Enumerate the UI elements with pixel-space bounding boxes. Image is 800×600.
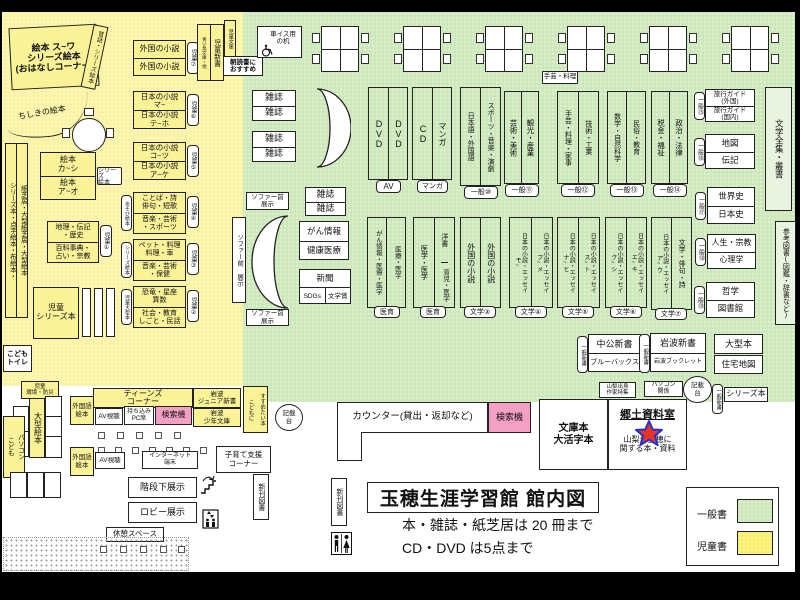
bench xyxy=(10,472,27,498)
shelf-literature-collections: 文学全集・叢書 xyxy=(765,87,792,211)
seat xyxy=(120,546,127,553)
tag-general-15: 一般⑮ xyxy=(694,92,705,120)
shelf-literature-7: 日本の小説・エッセイ ア~ウ文学・俳句・詩 xyxy=(651,217,692,310)
kids-computer: こどもパソコン xyxy=(3,416,25,478)
service-counter-wing xyxy=(337,432,362,461)
current-location-star xyxy=(635,420,663,448)
reference-books: 参考図書(図鑑・辞書など) xyxy=(775,221,796,325)
tag-children-3: 児童③ xyxy=(187,243,199,275)
shelf-travel-guides: 旅行ガイド (外国)旅行ガイド (国内) xyxy=(705,89,755,122)
legend-general-swatch xyxy=(737,499,773,523)
yamanashi-authors-feature: 山梨出身 作家特集 xyxy=(599,382,636,398)
cancer-info-health-rack: がん情報健康医療 xyxy=(299,221,349,260)
tag-general-11: 一般⑪ xyxy=(505,184,539,197)
tag-children-1: 児童① xyxy=(100,225,112,257)
bench xyxy=(27,472,44,498)
shelf-chuko-shinsho: 中公新書 xyxy=(588,334,641,354)
tag-general-19: 一般⑲ xyxy=(694,286,705,314)
tag-children-4: 児童④ xyxy=(187,196,199,228)
handicraft-cooking-label: 手芸・料理 xyxy=(542,71,578,84)
shelf-rack xyxy=(45,396,62,417)
loan-limit-av: CD・DVD は5点まで xyxy=(402,538,622,558)
elevator-icon xyxy=(202,507,219,529)
bunko-large-print-room: 文庫本 大活字本 xyxy=(539,399,608,470)
legend-general-label: 一般書 xyxy=(697,506,727,521)
sofa-front-display-left: ソファー前 展示 xyxy=(232,217,246,303)
shelf-children-5: 日本の小説 コ~ツ日本の小説 ア~ケ xyxy=(133,142,186,180)
wheelchair-desk: 車イス用 の机 xyxy=(257,26,302,58)
chair-row xyxy=(98,432,181,439)
tag-series-picture-books: シリーズ絵本 xyxy=(121,242,132,278)
tag-series-picture-books-side: シリーズ 絵本 xyxy=(97,167,122,185)
morning-reading-recommend: 朝読書に おすすめ xyxy=(223,56,263,76)
tag-children-2: 児童② xyxy=(187,290,199,322)
tag-literature-7: 文学⑦ xyxy=(655,308,687,320)
children-shinsho-shelf: 青い鳥文庫・他児童新書 xyxy=(197,24,224,81)
children-series-books: 児童 シリーズ本 xyxy=(33,287,79,339)
shelf-general-12: 手芸・料理・家事技術・工業 xyxy=(557,91,599,184)
shelf-medical-a: がん情報・医療・医学医療・医学 xyxy=(367,217,406,308)
shelf-children-6: 日本の小説 マ~日本の小説 テ~ホ xyxy=(133,91,186,129)
tag-general-shinsho-c: 一般新書 xyxy=(712,384,723,414)
shelf-children-7: 外国の小説外国の小説 xyxy=(133,40,186,76)
reading-table xyxy=(394,26,451,72)
shelf-children-1: 地理・伝記 ・歴史百科事典・ 占い・宗教 xyxy=(47,221,99,263)
bench xyxy=(44,472,61,498)
shelf-picture-books: 絵本 カ~シ絵本 ア~オ xyxy=(40,152,96,200)
tag-general-14: 一般⑭ xyxy=(653,184,687,197)
av-viewing-seat-2: AV視聴 xyxy=(95,452,125,469)
seat xyxy=(100,546,107,553)
shelf-general-14: 税金・福祉政治・法律 xyxy=(651,91,688,184)
reading-table xyxy=(640,26,697,72)
series-books-label: シリーズ本 xyxy=(724,387,768,402)
writing-stand-east: 記載 台 xyxy=(683,376,712,403)
shelf-large-books: 大型本 xyxy=(714,334,763,354)
under-stairs-display: 階段下展示 xyxy=(128,477,197,498)
sofa-crescent-bottom xyxy=(248,213,292,311)
seat xyxy=(160,546,167,553)
sofa-front-display-top: ソファー前 展示 xyxy=(246,192,289,210)
shelf-general-13: 数学・自然科学民俗・教育 xyxy=(607,91,646,184)
shelf-literature-3: 外国の小説外国の小説 xyxy=(460,217,501,308)
tag-general-shinsho-b: 一般新書 xyxy=(639,334,650,373)
legend: 一般書 児童書 xyxy=(686,487,779,566)
reading-table xyxy=(558,26,615,72)
floor-map-page: 絵本 ス~ワ シリーズ絵本 (おはなしコーナー) 昔話・シリーズ絵本 ちしきの絵… xyxy=(0,0,800,600)
tag-general-13: 一般⑬ xyxy=(610,184,644,197)
tag-general-shinsho-a: 一般新書 xyxy=(577,336,588,373)
tag-general-10: 一般⑩ xyxy=(464,186,498,199)
shelf-maps-biography: 地図伝記 xyxy=(705,134,755,169)
chair xyxy=(62,128,70,138)
shelf-children-4: ことば・詩 俳句・短歌音楽・芸術 ・スポーツ xyxy=(133,192,186,234)
magazine-rack: 雑誌雑誌 xyxy=(252,90,296,121)
large-picture-books: 大型絵本 xyxy=(29,398,45,458)
children-bunko-shelf: 児童文庫 xyxy=(224,20,236,58)
sofa-front-display-bottom: ソファー前 展示 xyxy=(246,309,289,326)
iwanami-junior-shinsho: 岩波 ジュニア新書 xyxy=(193,388,241,408)
shelf-children-2: 恐竜・星座 算数社会・教育 しごと・民話 xyxy=(133,286,186,328)
chair xyxy=(84,108,94,116)
tag-general-17: 一般⑰ xyxy=(695,192,706,220)
tag-play-picture-books: あそび絵本 xyxy=(121,195,132,231)
tag-manga: マンガ xyxy=(417,180,448,193)
chair xyxy=(106,128,114,138)
shelf-iwanami-booklet: 岩波ブックレット xyxy=(650,353,706,372)
shelf-literature-5: 日本の小説・エッセイ ナ~ヒ日本の小説・エッセイ ス~ト xyxy=(557,217,600,308)
shelf-children-3: ペット・料理 料理・車音楽・芸術 ・保健 xyxy=(133,239,186,281)
search-terminal-counter[interactable]: 検索機 xyxy=(488,402,531,433)
recommended-for-kids: こどもにすすめたい本 xyxy=(243,386,268,433)
toilet-icon xyxy=(331,532,352,555)
childcare-support-corner: 子育て支援 コーナー xyxy=(216,446,271,473)
computer-books-label: パソコン 関係 xyxy=(644,381,683,397)
tag-literature-4: 文学④ xyxy=(515,306,547,318)
shelf-braille-cloth-kamishibai: シリーズ本・点字絵本・布絵本・紙芝居・大型紙芝居・大型絵本 xyxy=(5,143,28,318)
tag-medical-a: 医育 xyxy=(374,306,400,318)
tag-literature-6: 文学⑥ xyxy=(610,306,642,318)
seat xyxy=(178,546,185,553)
shelf-dvd: DVDDVD xyxy=(368,87,408,180)
writing-stand-west: 記載 台 xyxy=(275,404,303,431)
tag-literature-5: 文学⑤ xyxy=(562,306,594,318)
iwanami-shonen-bunko: 岩波 少年文庫 xyxy=(193,408,241,427)
tag-children-6: 児童⑥ xyxy=(187,94,199,126)
av-viewing-seat: AV視聴 xyxy=(95,408,123,425)
shelf-literature-4: 日本の小説・エッセイ モ~日本の小説・エッセイ フ~メ xyxy=(509,217,553,308)
magazine-rack: 雑誌雑誌 xyxy=(252,131,296,162)
rest-area-floor xyxy=(3,537,189,571)
search-terminal-teens[interactable]: 検索機 xyxy=(155,406,192,425)
tag-av: AV xyxy=(376,180,401,193)
tag-medical-b: 医育 xyxy=(420,306,446,318)
shelf-rack xyxy=(82,287,116,339)
sofa-crescent-top xyxy=(313,86,351,170)
tag-children-5: 児童⑤ xyxy=(187,145,199,177)
reading-table xyxy=(722,26,779,72)
map-title: 玉穂生涯学習館 館内図 xyxy=(380,484,586,511)
shelf-rack xyxy=(45,436,62,458)
tag-general-16: 一般⑯ xyxy=(694,138,705,166)
new-books-2: 新刊図書 xyxy=(331,478,347,526)
magazine-rack: 雑誌雑誌 xyxy=(305,187,346,216)
reading-table xyxy=(312,26,369,72)
legend-children-swatch xyxy=(737,531,773,555)
shelf-world-japan-history: 世界史日本史 xyxy=(707,187,755,224)
shelf-general-10: 日本語・外国語スポーツ・音楽・演劇 xyxy=(460,87,501,186)
map-title-box: 玉穂生涯学習館 館内図 xyxy=(367,482,599,513)
shelf-general-11: 芸術・美術観光・産業 xyxy=(504,91,539,184)
shelf-life-religion-psychology: 人生・宗教心理学 xyxy=(707,234,756,269)
shelf-philosophy-library: 哲学図書館 xyxy=(706,282,755,318)
stairs-icon xyxy=(199,473,217,495)
tag-general-12: 一般⑫ xyxy=(561,184,595,197)
kids-toilet: こども トイレ xyxy=(3,345,32,372)
byo-pc-seat: 持ち込み PC席 xyxy=(124,406,154,425)
shelf-cd-manga: CDマンガ xyxy=(412,87,452,180)
newspaper-sdgs-rack: 新聞 SDGs 文学賞 xyxy=(299,269,351,304)
shelf-iwanami-shinsho: 岩波新書 xyxy=(650,333,706,354)
shelf-rack xyxy=(45,416,62,437)
lobby-display: ロビー展示 xyxy=(128,502,197,523)
tag-general-18: 一般⑱ xyxy=(695,238,706,266)
reading-table xyxy=(476,26,533,72)
foreign-language-picture-books: 外国語 絵本 xyxy=(70,396,94,425)
seat xyxy=(140,546,147,553)
teens-corner: ティーンズ コーナー xyxy=(93,388,193,408)
loan-limit-books: 本・雑誌・紙芝居は 20 冊まで xyxy=(402,515,652,535)
shelf-residential-maps: 住宅地図 xyxy=(714,355,763,374)
tag-literature-3: 文学③ xyxy=(464,306,496,318)
service-counter: カウンター(貸出・返却など) xyxy=(337,402,488,433)
shelf-bluebacks: ブルーバックス xyxy=(588,353,641,372)
tag-children-large-books: 児童大型本 xyxy=(121,289,132,325)
new-books-1: 新刊図書 xyxy=(253,474,269,520)
shelf-literature-6: 日本の小説・エッセイ ク~シ日本の小説・エッセイ エ~キ xyxy=(605,217,647,308)
shelf-medical-b: 医学・医学 洋書 育児・医学 xyxy=(413,217,455,308)
round-table xyxy=(72,118,106,152)
foreign-language-picture-books-2: 外国語 絵本 xyxy=(70,447,94,476)
wheelchair-icon xyxy=(261,44,274,57)
legend-children-label: 児童書 xyxy=(697,538,727,553)
internet-terminal[interactable]: インターネット 端末 xyxy=(142,451,198,469)
